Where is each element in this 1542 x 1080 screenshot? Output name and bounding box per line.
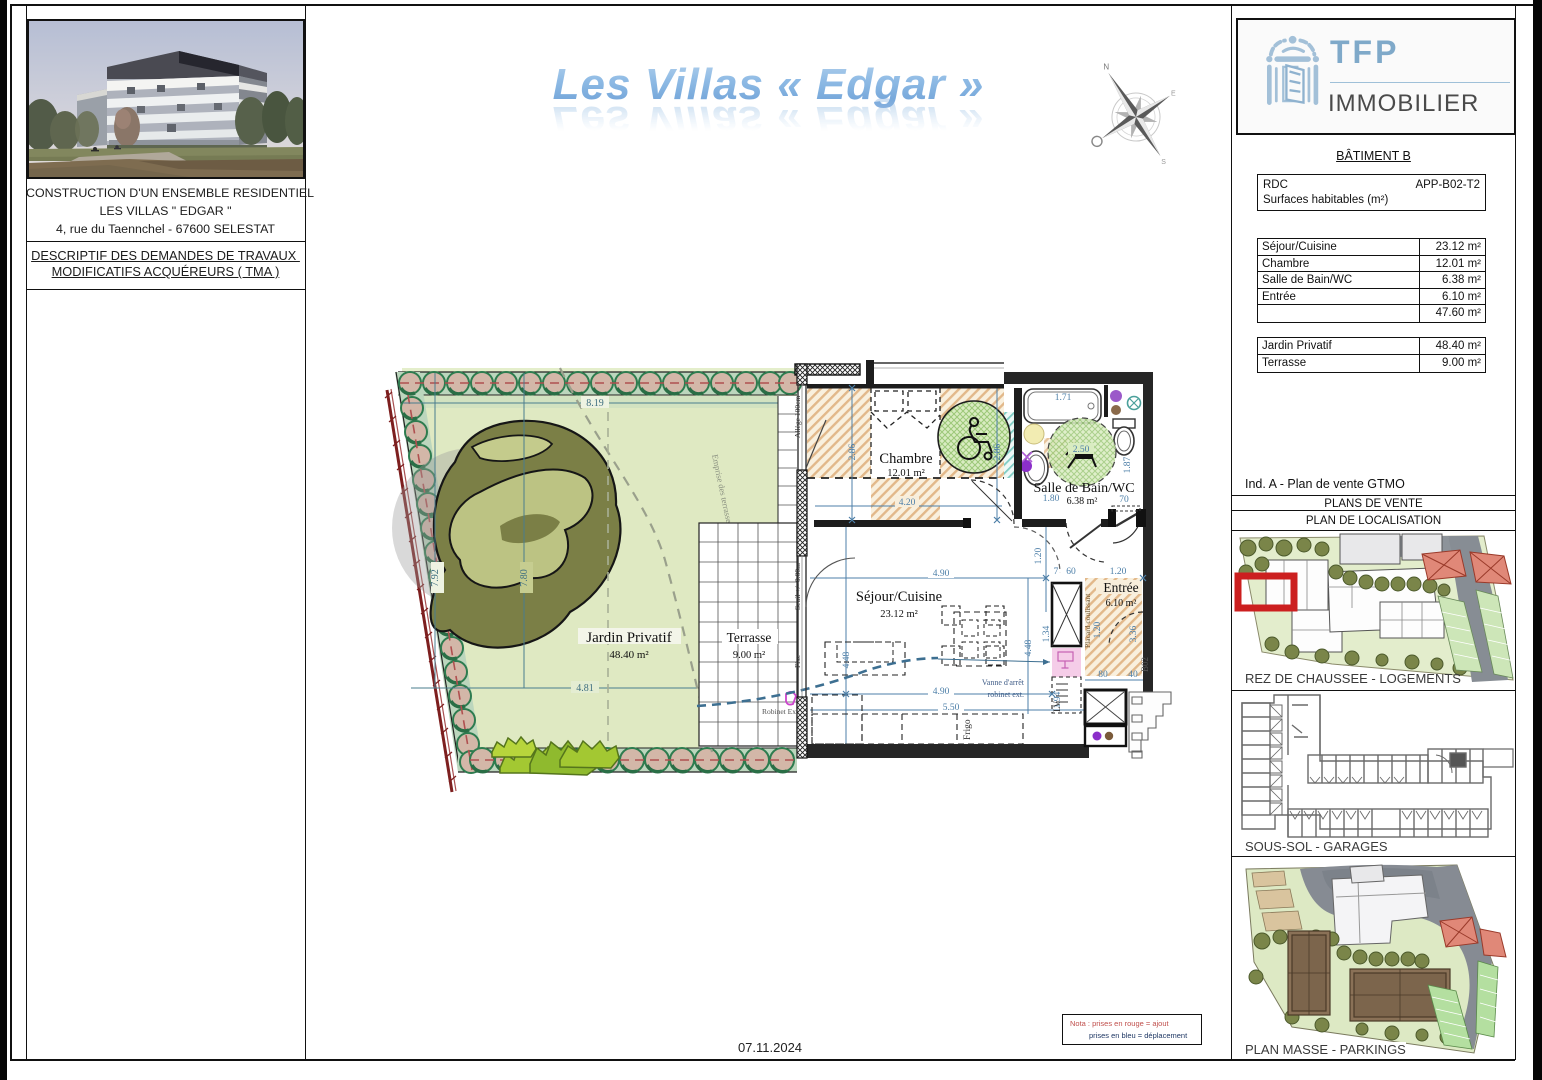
svg-text:9.00 m²: 9.00 m²: [733, 650, 765, 661]
svg-text:1.80: 1.80: [1043, 494, 1060, 504]
svg-text:3.36: 3.36: [1129, 625, 1139, 642]
svg-text:Seuil +/- 0.00m: Seuil +/- 0.00m: [793, 563, 802, 610]
svg-text:6.10 m²: 6.10 m²: [1106, 598, 1137, 609]
svg-text:4.81: 4.81: [576, 683, 594, 694]
svg-text:23.12 m²: 23.12 m²: [880, 609, 918, 620]
svg-text:80: 80: [1098, 670, 1108, 680]
svg-text:robinet ext.: robinet ext.: [988, 690, 1024, 699]
svg-text:1.71: 1.71: [1055, 393, 1072, 403]
svg-text:Séjour/Cuisine: Séjour/Cuisine: [856, 589, 942, 605]
svg-text:1.87: 1.87: [1123, 456, 1133, 473]
svg-text:4.48: 4.48: [842, 651, 852, 668]
svg-text:2.86: 2.86: [993, 443, 1003, 460]
svg-text:Vanne d'arrêt: Vanne d'arrêt: [982, 678, 1025, 687]
svg-text:7: 7: [1054, 567, 1059, 577]
svg-text:7.80: 7.80: [519, 569, 530, 587]
svg-text:Robinet Ext.: Robinet Ext.: [762, 707, 800, 716]
svg-text:4.90: 4.90: [933, 687, 950, 697]
svg-text:4.90: 4.90: [933, 569, 950, 579]
svg-text:2.50: 2.50: [1073, 445, 1090, 455]
svg-text:Terrasse: Terrasse: [727, 630, 772, 645]
svg-text:4.20: 4.20: [899, 498, 916, 508]
svg-text:60: 60: [1066, 567, 1076, 577]
svg-text:Jardin Privatif: Jardin Privatif: [586, 630, 671, 646]
svg-text:5.50: 5.50: [943, 703, 960, 713]
svg-text:12.01 m²: 12.01 m²: [887, 468, 925, 479]
svg-text:1.20: 1.20: [1034, 547, 1044, 564]
svg-text:Frigo: Frigo: [963, 719, 973, 740]
svg-text:70: 70: [1119, 495, 1129, 505]
svg-text:B02: B02: [1140, 657, 1150, 672]
svg-text:2.86: 2.86: [848, 443, 858, 460]
svg-text:LV: LV: [1052, 700, 1062, 712]
svg-text:Chambre: Chambre: [879, 451, 932, 467]
svg-text:1.34: 1.34: [1042, 625, 1052, 642]
svg-text:8.19: 8.19: [586, 398, 604, 409]
svg-text:Allège 100cm: Allège 100cm: [793, 396, 802, 438]
svg-text:Entrée: Entrée: [1103, 580, 1138, 595]
svg-text:7.92: 7.92: [430, 569, 441, 587]
svg-text:Placard coulissant: Placard coulissant: [1083, 593, 1092, 648]
svg-text:4.48: 4.48: [1024, 639, 1034, 656]
svg-text:40: 40: [1128, 670, 1138, 680]
svg-text:6.38 m²: 6.38 m²: [1067, 496, 1098, 507]
svg-text:Fixe: Fixe: [793, 654, 802, 668]
svg-text:1.20: 1.20: [1110, 567, 1127, 577]
svg-text:1.20: 1.20: [1093, 621, 1103, 638]
svg-text:48.40 m²: 48.40 m²: [609, 649, 649, 661]
